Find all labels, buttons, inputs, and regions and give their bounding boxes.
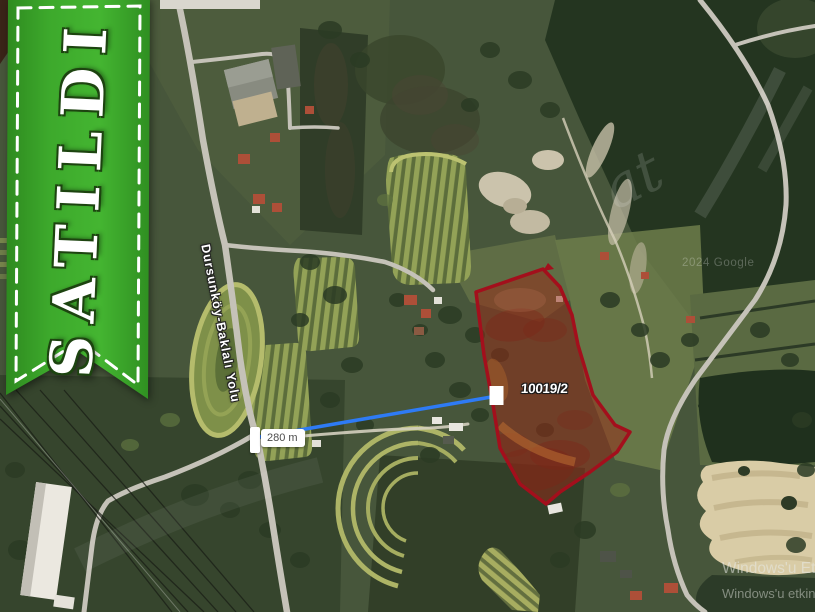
measurement-distance-label: 280 m <box>261 429 305 447</box>
parcel-id-label: 10019/2 <box>520 381 568 396</box>
measurement-start-marker[interactable] <box>250 427 260 453</box>
satellite-map-view[interactable]: at <box>0 0 815 612</box>
map-attribution: 2024 Google <box>682 257 754 269</box>
windows-activation-watermark-line1: Windows'u Et <box>722 560 815 578</box>
sold-ribbon: SATILDI <box>5 0 153 403</box>
windows-activation-watermark-line2: Windows'u etkinle <box>722 586 815 601</box>
measurement-endpoint-marker[interactable] <box>490 386 504 405</box>
